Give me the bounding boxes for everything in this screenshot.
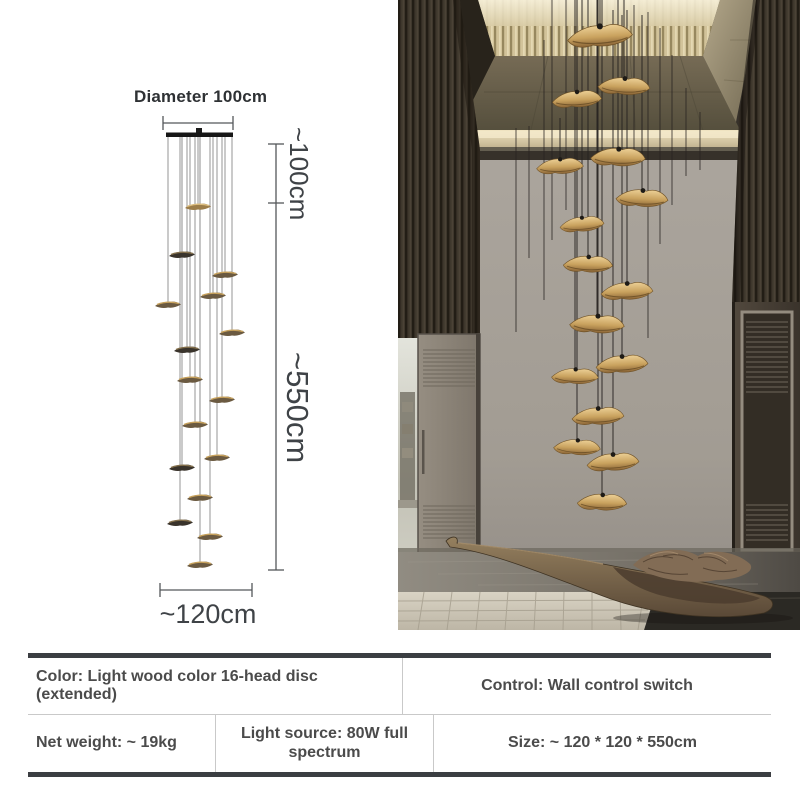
- spec-net-weight-text: Net weight: ~ 19kg: [36, 734, 177, 752]
- bottom-width-label: ~120cm: [156, 599, 260, 630]
- spec-cell-light-source: Light source: 80W full spectrum: [215, 715, 433, 772]
- spec-cell-net-weight: Net weight: ~ 19kg: [28, 715, 215, 772]
- diameter-label: Diameter 100cm: [134, 87, 267, 107]
- spec-size-text: Size: ~ 120 * 120 * 550cm: [508, 734, 697, 752]
- spec-light-source-text: Light source: 80W full spectrum: [230, 725, 420, 762]
- installation-photo: [398, 0, 800, 630]
- drop-height-label: ~100cm: [283, 127, 314, 220]
- right-louver-door: [732, 302, 800, 588]
- spec-table-row-1: Color: Light wood color 16-head disc (ex…: [28, 658, 771, 715]
- spec-table-row-2: Net weight: ~ 19kg Light source: 80W ful…: [28, 715, 771, 772]
- spec-table: Color: Light wood color 16-head disc (ex…: [28, 653, 771, 777]
- product-spec-page: Diameter 100cm ~100cm ~550cm ~120cm: [0, 0, 800, 800]
- spec-cell-color: Color: Light wood color 16-head disc (ex…: [28, 658, 402, 714]
- spec-control-text: Control: Wall control switch: [481, 677, 693, 695]
- fixture-height-label: ~550cm: [279, 352, 315, 463]
- spec-cell-size: Size: ~ 120 * 120 * 550cm: [433, 715, 771, 772]
- ceiling-canopy: [166, 128, 233, 137]
- spec-color-text: Color: Light wood color 16-head disc (ex…: [36, 668, 348, 705]
- spec-cell-control: Control: Wall control switch: [402, 658, 771, 714]
